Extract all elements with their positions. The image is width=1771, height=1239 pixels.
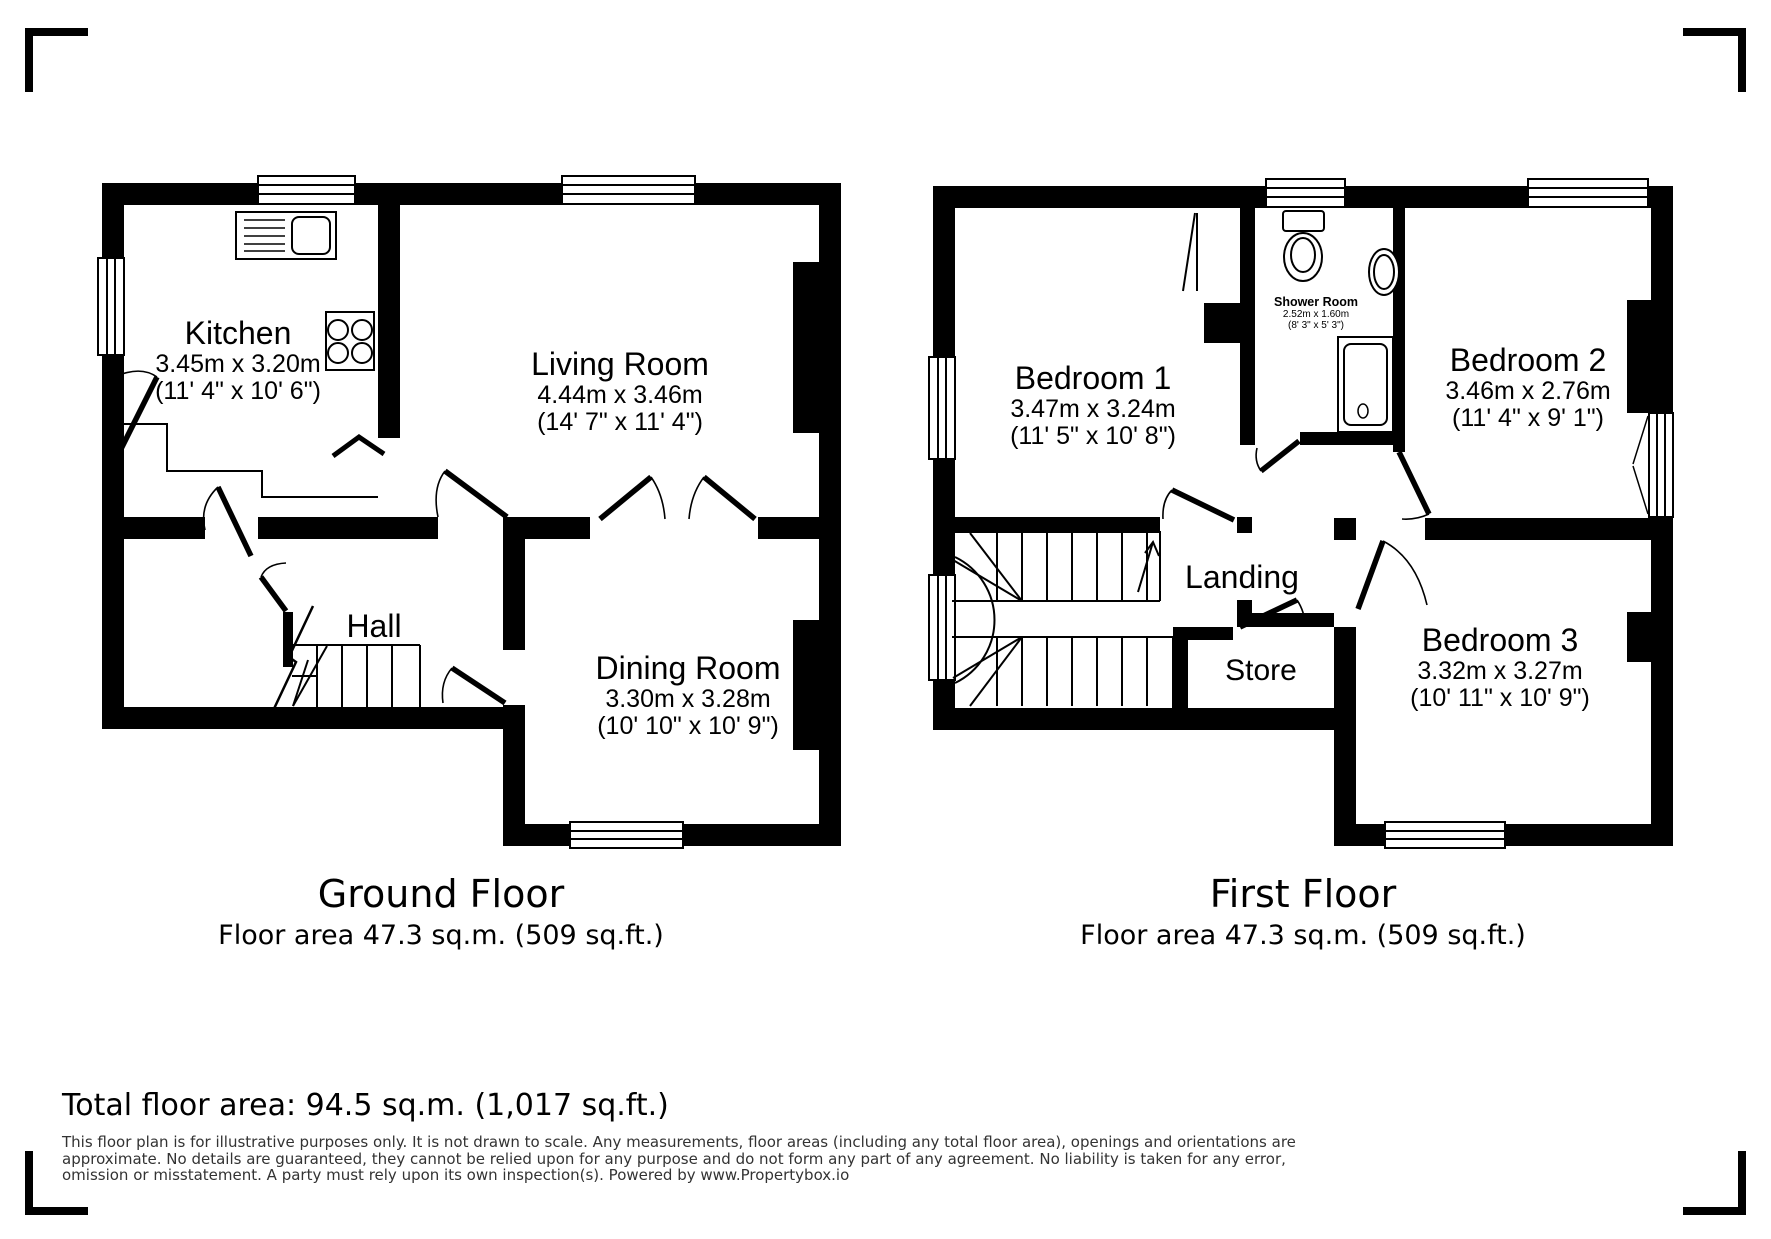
- bedroom3-label: Bedroom 3 3.32m x 3.27m (10' 11" x 10' 9…: [1410, 622, 1590, 712]
- shower-room-metric: 2.52m x 1.60m: [1274, 309, 1358, 320]
- kitchen-top-window: [258, 176, 355, 204]
- ground-floor-title: Ground Floor: [318, 872, 564, 916]
- shower-room-imperial: (8' 3" x 5' 3"): [1274, 320, 1358, 331]
- first-floor-title: First Floor: [1210, 872, 1397, 916]
- hall-name: Hall: [346, 608, 401, 644]
- bedroom2-label: Bedroom 2 3.46m x 2.76m (11' 4" x 9' 1"): [1445, 342, 1610, 432]
- shower-tray-icon: [1338, 337, 1393, 432]
- kitchen-understairs-outline: [122, 424, 378, 497]
- living-room-name: Living Room: [531, 346, 709, 382]
- first-floor-area: Floor area 47.3 sq.m. (509 sq.ft.): [1080, 920, 1526, 951]
- stairs-left-window: [929, 575, 955, 680]
- kitchen-label: Kitchen 3.45m x 3.20m (11' 4" x 10' 6"): [155, 315, 321, 405]
- bedroom1-cupboard-door: [1183, 213, 1197, 291]
- disclaimer-line-2: approximate. No details are guaranteed, …: [62, 1151, 1296, 1168]
- ground-floor-walls: [102, 183, 841, 846]
- kitchen-hob: [326, 312, 374, 370]
- kitchen-bifold-door: [333, 437, 384, 456]
- shower-room-label: Shower Room 2.52m x 1.60m (8' 3" x 5' 3"…: [1274, 295, 1358, 331]
- living-room-hall-door: [436, 471, 507, 517]
- first-floor-walls: [933, 186, 1673, 846]
- first-floor-doors: [1163, 441, 1429, 627]
- bedroom3-name: Bedroom 3: [1410, 622, 1590, 658]
- dining-room-chimney: [793, 620, 819, 750]
- crop-mark-bottom-right-v: [1738, 1151, 1746, 1215]
- disclaimer-line-1: This floor plan is for illustrative purp…: [62, 1134, 1296, 1151]
- floorplan-drawing: [0, 0, 1771, 1239]
- shower-room-top-window: [1266, 179, 1345, 207]
- dining-room-name: Dining Room: [596, 650, 781, 686]
- bedroom2-imperial: (11' 4" x 9' 1"): [1445, 405, 1610, 432]
- kitchen-name: Kitchen: [155, 315, 321, 351]
- ground-floor-plan: [98, 176, 841, 848]
- hall-label: Hall: [346, 608, 401, 644]
- total-floor-area: Total floor area: 94.5 sq.m. (1,017 sq.f…: [62, 1088, 669, 1123]
- kitchen-metric: 3.45m x 3.20m: [155, 351, 321, 378]
- hall-dining-door: [442, 668, 505, 703]
- kitchen-left-window: [98, 258, 124, 355]
- bedroom3-chimney: [1627, 612, 1651, 662]
- dining-room-imperial: (10' 10" x 10' 9"): [596, 713, 781, 740]
- landing-staircase: [952, 531, 1173, 708]
- floorplan-page: { "ground_floor": { "title": "Ground Flo…: [0, 0, 1771, 1239]
- bedroom3-metric: 3.32m x 3.27m: [1410, 658, 1590, 685]
- living-room-label: Living Room 4.44m x 3.46m (14' 7" x 11' …: [531, 346, 709, 436]
- crop-mark-bottom-left-h: [25, 1207, 88, 1215]
- living-room-top-window: [562, 176, 695, 204]
- toilet-icon: [1283, 211, 1324, 281]
- kitchen-hall-door: [204, 487, 251, 556]
- kitchen-imperial: (11' 4" x 10' 6"): [155, 378, 321, 405]
- bedroom1-door: [1163, 490, 1234, 520]
- shower-room-door: [1256, 441, 1299, 471]
- living-room-metric: 4.44m x 3.46m: [531, 382, 709, 409]
- bedroom3-bottom-window: [1385, 822, 1505, 848]
- stair-direction-arrow: [1138, 542, 1159, 592]
- bedroom2-name: Bedroom 2: [1445, 342, 1610, 378]
- living-dining-double-doors: [600, 477, 755, 519]
- bedroom2-door: [1399, 452, 1429, 519]
- disclaimer-text: This floor plan is for illustrative purp…: [62, 1134, 1296, 1184]
- crop-mark-top-right-v: [1738, 28, 1746, 92]
- basin-icon: [1369, 249, 1399, 295]
- bedroom1-imperial: (11' 5" x 10' 8"): [1010, 423, 1176, 450]
- bedroom3-door: [1358, 541, 1427, 609]
- bedroom1-left-window: [929, 357, 955, 459]
- kitchen-sink-unit: [236, 212, 336, 259]
- disclaimer-line-3: omission or misstatement. A party must r…: [62, 1167, 1296, 1184]
- dining-room-bottom-window: [570, 822, 683, 848]
- dining-room-label: Dining Room 3.30m x 3.28m (10' 10" x 10'…: [596, 650, 781, 740]
- first-floor-plan: [929, 179, 1673, 848]
- bedroom2-chimney: [1627, 300, 1651, 413]
- crop-mark-top-right-h: [1683, 28, 1746, 36]
- bedroom1-cupboard: [1204, 303, 1255, 343]
- bedroom1-metric: 3.47m x 3.24m: [1010, 396, 1176, 423]
- landing-name: Landing: [1185, 559, 1299, 595]
- crop-mark-bottom-left-v: [25, 1151, 33, 1215]
- dining-room-metric: 3.30m x 3.28m: [596, 686, 781, 713]
- bedroom1-name: Bedroom 1: [1010, 360, 1176, 396]
- kitchen-external-door: [120, 371, 157, 451]
- bedroom2-metric: 3.46m x 2.76m: [1445, 378, 1610, 405]
- bedroom1-label: Bedroom 1 3.47m x 3.24m (11' 5" x 10' 8"…: [1010, 360, 1176, 450]
- crop-mark-top-left-v: [25, 28, 33, 92]
- landing-label: Landing: [1185, 559, 1299, 595]
- bedroom3-imperial: (10' 11" x 10' 9"): [1410, 685, 1590, 712]
- crop-mark-bottom-right-h: [1683, 1207, 1746, 1215]
- ground-floor-area: Floor area 47.3 sq.m. (509 sq.ft.): [218, 920, 664, 951]
- crop-mark-top-left-h: [25, 28, 88, 36]
- hall-stairs-door: [261, 563, 286, 611]
- store-name: Store: [1225, 653, 1297, 689]
- bedroom2-right-window: [1633, 413, 1673, 517]
- store-label: Store: [1225, 653, 1297, 689]
- living-room-imperial: (14' 7" x 11' 4"): [531, 409, 709, 436]
- shower-room-name: Shower Room: [1274, 295, 1358, 309]
- living-room-chimney: [793, 262, 819, 433]
- bedroom2-top-window: [1528, 179, 1648, 207]
